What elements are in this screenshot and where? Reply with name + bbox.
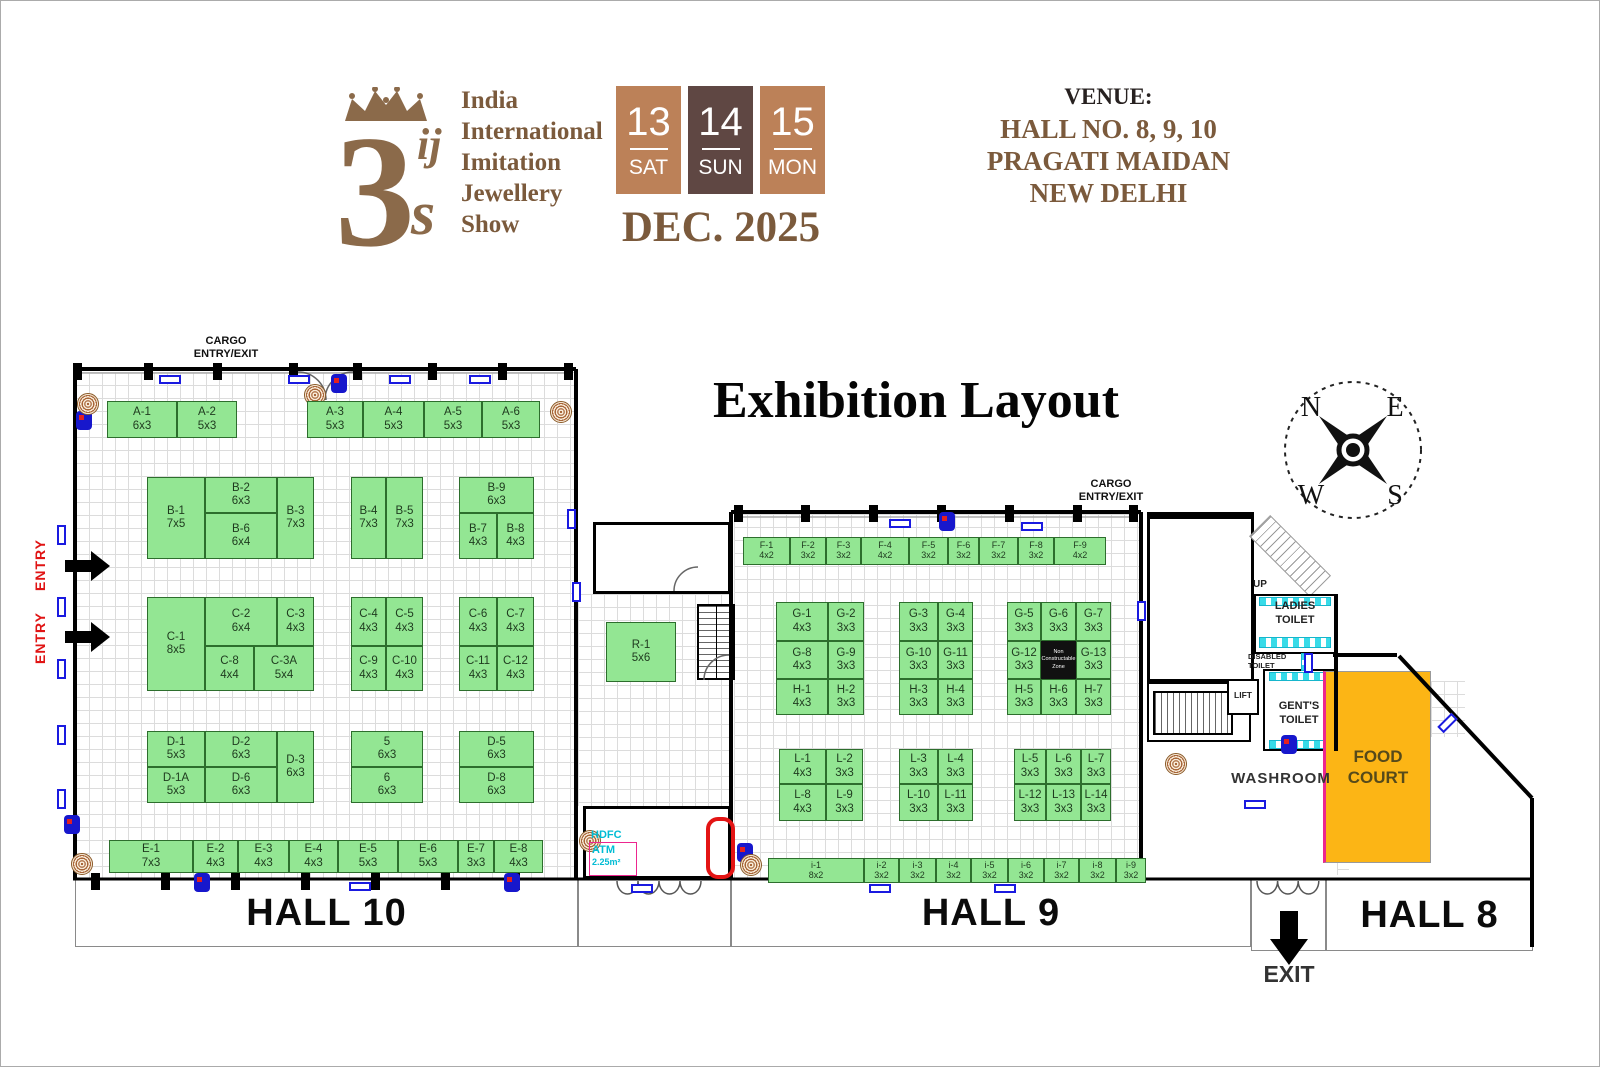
booth-A-3: A-35x3	[307, 401, 363, 438]
booth-F-8: F-83x2	[1018, 537, 1054, 565]
booth-G-10: G-103x3	[899, 641, 938, 679]
booth-L-9: L-93x3	[826, 784, 863, 821]
booth-C-6: C-64x3	[459, 597, 497, 646]
booth-B-3: B-37x3	[277, 477, 314, 559]
wall-vent-icon	[57, 789, 66, 809]
hose-reel-icon	[71, 853, 93, 875]
booth-B-7: B-74x3	[459, 513, 497, 559]
booth-B-9: B-96x3	[459, 477, 534, 513]
wall-vent-icon	[1137, 601, 1146, 621]
wall-column	[1129, 505, 1138, 522]
fire-extinguisher-icon	[1281, 735, 1297, 754]
wall-vent-icon	[159, 375, 181, 384]
booth-F-4: F-44x2	[861, 537, 909, 565]
booth-L-10: L-103x3	[899, 784, 938, 821]
atm-bank-label: HDFC	[591, 830, 622, 841]
wall-column	[734, 505, 743, 522]
booth-G-11: G-113x3	[938, 641, 973, 679]
non-constructable-zone: Non Constructable Zone	[1041, 641, 1076, 679]
cargo-entry-exit-left: CARGO ENTRY/EXIT	[166, 335, 286, 361]
compass-w: W	[1298, 480, 1325, 511]
wall-column	[801, 505, 810, 522]
booth-C-8: C-84x4	[205, 646, 254, 691]
booth-G-8: G-84x3	[776, 641, 828, 679]
booth-i-1: i-18x2	[768, 858, 864, 883]
booth-G-12: G-123x3	[1007, 641, 1041, 679]
booth-5: 56x3	[351, 731, 423, 767]
wall-vent-icon	[889, 519, 911, 528]
fire-extinguisher-icon	[504, 873, 520, 892]
booth-F-5: F-53x2	[909, 537, 948, 565]
compass-n: N	[1301, 392, 1321, 423]
wall-column	[161, 873, 170, 890]
booth-D-3: D-36x3	[277, 731, 314, 803]
booth-6: 66x3	[351, 767, 423, 803]
booth-C-2: C-26x4	[205, 597, 277, 646]
booth-A-4: A-45x3	[363, 401, 424, 438]
booth-A-5: A-55x3	[424, 401, 482, 438]
booth-E-7: E-73x3	[458, 840, 494, 873]
booth-L-1: L-14x3	[779, 749, 826, 784]
booth-F-3: F-33x2	[826, 537, 861, 565]
booth-G-5: G-53x3	[1007, 602, 1041, 641]
washroom-label: WASHROOM	[1213, 771, 1349, 786]
booth-B-5: B-57x3	[386, 477, 423, 559]
wall-column	[1073, 505, 1082, 522]
booth-G-6: G-63x3	[1041, 602, 1076, 641]
booth-C-10: C-104x3	[386, 646, 423, 691]
wall-column	[301, 873, 310, 890]
ladies-toilet-label: LADIES TOILET	[1254, 599, 1336, 627]
booth-F-1: F-14x2	[743, 537, 790, 565]
booth-H-5: H-53x3	[1007, 679, 1041, 715]
wall-vent-icon	[57, 659, 66, 679]
booth-L-13: L-133x3	[1046, 784, 1081, 821]
booth-L-11: L-113x3	[938, 784, 973, 821]
booth-F-7: F-73x2	[979, 537, 1018, 565]
booth-B-2: B-26x3	[205, 477, 277, 513]
booth-G-3: G-33x3	[899, 602, 938, 641]
booth-D-1A: D-1A5x3	[147, 767, 205, 803]
wall-vent-icon	[349, 882, 371, 891]
booth-H-7: H-73x3	[1076, 679, 1111, 715]
booth-G-7: G-73x3	[1076, 602, 1111, 641]
booth-G-2: G-23x3	[828, 602, 864, 641]
compass-e: E	[1386, 392, 1403, 423]
booth-D-6: D-66x3	[205, 767, 277, 803]
booth-D-1: D-15x3	[147, 731, 205, 767]
wall-column	[869, 505, 878, 522]
wall-vent-icon	[389, 375, 411, 384]
disabled-toilet-label: DISABLED TOILET	[1248, 653, 1306, 670]
booth-L-14: L-143x3	[1081, 784, 1111, 821]
booth-C-4: C-44x3	[351, 597, 386, 646]
wall-column	[73, 363, 82, 380]
entry-label-2: ENTRY	[33, 612, 47, 664]
wall-column	[441, 873, 450, 890]
booth-L-4: L-43x3	[938, 749, 973, 784]
lift-label: LIFT	[1227, 691, 1259, 700]
booth-B-8: B-84x3	[497, 513, 534, 559]
wall-column	[144, 363, 153, 380]
booth-i-2: i-23x2	[864, 858, 899, 883]
wall-vent-icon	[572, 582, 581, 602]
booth-H-3: H-33x3	[899, 679, 938, 715]
fire-extinguisher-icon	[64, 815, 80, 834]
wall-vent-icon	[57, 597, 66, 617]
hose-reel-icon	[77, 393, 99, 415]
hose-reel-icon	[740, 854, 762, 876]
compass-rose-icon: N E W S	[1285, 382, 1421, 518]
booth-C-1: C-18x5	[147, 597, 205, 691]
wall-vent-icon	[567, 509, 576, 529]
booth-G-9: G-93x3	[828, 641, 864, 679]
booth-i-8: i-83x2	[1079, 858, 1116, 883]
booth-G-1: G-14x3	[776, 602, 828, 641]
atm-area-label: 2.25m²	[592, 856, 634, 868]
exit-label: EXIT	[1254, 963, 1324, 986]
booth-L-5: L-53x3	[1014, 749, 1046, 784]
booth-L-2: L-23x3	[826, 749, 863, 784]
booth-L-12: L-123x3	[1014, 784, 1046, 821]
booth-C-3A: C-3A5x4	[254, 646, 314, 691]
booth-E-4: E-44x3	[289, 840, 338, 873]
booth-F-9: F-94x2	[1054, 537, 1106, 565]
wall-column	[428, 363, 437, 380]
booth-R-1: R-15x6	[606, 622, 676, 682]
booth-B-6: B-66x4	[205, 513, 277, 559]
exhibition-layout-poster: 3 ij s India International Imitation Jew…	[0, 0, 1600, 1067]
wall-vent-icon	[1021, 522, 1043, 531]
booth-D-2: D-26x3	[205, 731, 277, 767]
booth-L-3: L-33x3	[899, 749, 938, 784]
booth-G-4: G-43x3	[938, 602, 973, 641]
booth-F-6: F-63x2	[948, 537, 979, 565]
booth-H-4: H-43x3	[938, 679, 973, 715]
wall-vent-icon	[469, 375, 491, 384]
booth-D-5: D-56x3	[459, 731, 534, 767]
wall-column	[213, 363, 222, 380]
booth-L-6: L-63x3	[1046, 749, 1081, 784]
booth-i-3: i-33x2	[899, 858, 936, 883]
booth-E-8: E-84x3	[494, 840, 543, 873]
atm-booth: ATM 2.25m²	[589, 842, 637, 876]
booth-E-5: E-55x3	[338, 840, 398, 873]
wall-column	[353, 363, 362, 380]
booth-H-1: H-14x3	[776, 679, 828, 715]
wall-vent-icon	[1244, 800, 1266, 809]
booth-i-6: i-63x2	[1008, 858, 1044, 883]
booth-C-11: C-114x3	[459, 646, 497, 691]
booth-C-7: C-74x3	[497, 597, 534, 646]
fire-extinguisher-icon	[331, 374, 347, 393]
booth-A-6: A-65x3	[482, 401, 540, 438]
booth-B-4: B-47x3	[351, 477, 386, 559]
booth-i-4: i-43x2	[936, 858, 971, 883]
booth-F-2: F-23x2	[790, 537, 826, 565]
compass-s: S	[1387, 480, 1403, 511]
booth-E-2: E-24x3	[193, 840, 238, 873]
booth-G-13: G-133x3	[1076, 641, 1111, 679]
booth-H-2: H-23x3	[828, 679, 864, 715]
booth-E-1: E-17x3	[109, 840, 193, 873]
booth-A-1: A-16x3	[107, 401, 177, 438]
atm-label: ATM	[592, 844, 634, 856]
fire-extinguisher-icon	[939, 512, 955, 531]
wall-vent-icon	[994, 884, 1016, 893]
booth-i-5: i-53x2	[971, 858, 1008, 883]
wall-column	[231, 873, 240, 890]
fire-extinguisher-icon	[194, 873, 210, 892]
hose-reel-icon	[550, 401, 572, 423]
wall-column	[91, 873, 100, 890]
wall-vent-icon	[57, 525, 66, 545]
gents-toilet-label: GENT'S TOILET	[1263, 699, 1335, 727]
wall-column	[564, 363, 573, 380]
wall-vent-icon	[631, 884, 653, 893]
booth-H-6: H-63x3	[1041, 679, 1076, 715]
booth-A-2: A-25x3	[177, 401, 237, 438]
entry-label-1: ENTRY	[33, 539, 47, 591]
booth-C-12: C-124x3	[497, 646, 534, 691]
booth-i-9: i-93x2	[1116, 858, 1146, 883]
booth-C-9: C-94x3	[351, 646, 386, 691]
booth-C-3: C-34x3	[277, 597, 314, 646]
booth-B-1: B-17x5	[147, 477, 205, 559]
booth-L-7: L-73x3	[1081, 749, 1111, 784]
booth-L-8: L-84x3	[779, 784, 826, 821]
wall-vent-icon	[288, 375, 310, 384]
booth-D-8: D-86x3	[459, 767, 534, 803]
wall-vent-icon	[869, 884, 891, 893]
up-label: UP	[1253, 581, 1267, 590]
booth-C-5: C-54x3	[386, 597, 423, 646]
wall-column	[371, 873, 380, 890]
wall-column	[1005, 505, 1014, 522]
hose-reel-icon	[1165, 753, 1187, 775]
cargo-entry-exit-right: CARGO ENTRY/EXIT	[1051, 478, 1171, 504]
booth-E-3: E-34x3	[238, 840, 289, 873]
wall-vent-icon	[57, 725, 66, 745]
wall-column	[498, 363, 507, 380]
booth-i-7: i-73x2	[1044, 858, 1079, 883]
exit-arrow	[1270, 911, 1308, 965]
booth-E-6: E-65x3	[398, 840, 458, 873]
